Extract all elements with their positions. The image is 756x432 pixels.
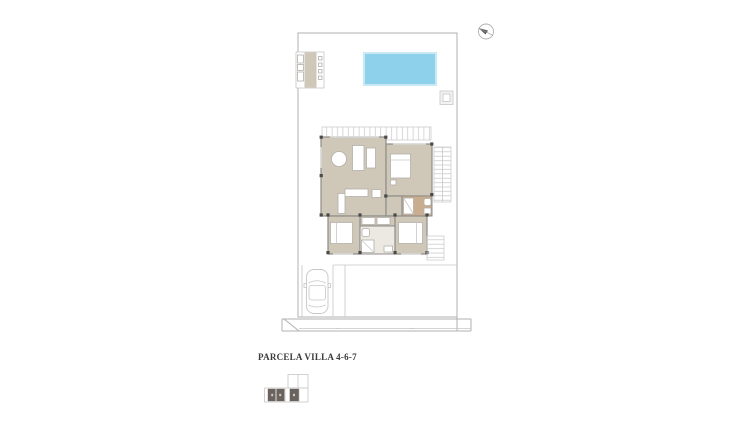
- sideboard: [367, 148, 376, 168]
- room-corridor: [386, 196, 402, 216]
- outdoor-kitchen: [296, 52, 324, 88]
- outdoor-kitchen-grill: [298, 72, 304, 81]
- site-plan-drawing: [0, 0, 756, 432]
- driveway: [302, 265, 457, 317]
- sink: [424, 208, 431, 214]
- floor-plan-sheet: PARCELA VILLA 4-6-7: [0, 0, 756, 432]
- exterior-stairs: [427, 236, 444, 260]
- closet: [377, 218, 390, 225]
- compass-icon: [479, 24, 494, 39]
- plan-title: PARCELA VILLA 4-6-7: [258, 352, 357, 362]
- dining-table: [332, 152, 347, 167]
- planter-box: [440, 91, 453, 105]
- outdoor-kitchen-roof: [305, 53, 317, 88]
- car-mirror: [304, 284, 307, 288]
- sink: [384, 246, 393, 252]
- street: [282, 319, 471, 331]
- swimming-pool: [364, 53, 436, 85]
- outdoor-kitchen-sink: [298, 65, 304, 71]
- bed-bedroom-2: [331, 223, 353, 244]
- access-ramp: [284, 319, 299, 331]
- sofa: [353, 146, 365, 171]
- outdoor-kitchen-counter: [298, 55, 304, 63]
- bed-bedroom-3: [399, 223, 423, 244]
- pool-water: [364, 53, 436, 85]
- toilet: [424, 199, 431, 206]
- toilet: [362, 229, 370, 237]
- house-plan: [320, 136, 451, 260]
- closet: [362, 218, 375, 225]
- staircase: [434, 147, 451, 202]
- car: [304, 270, 331, 314]
- keyplan: [265, 375, 309, 403]
- car-mirror: [328, 284, 331, 288]
- planter-inner: [443, 94, 450, 102]
